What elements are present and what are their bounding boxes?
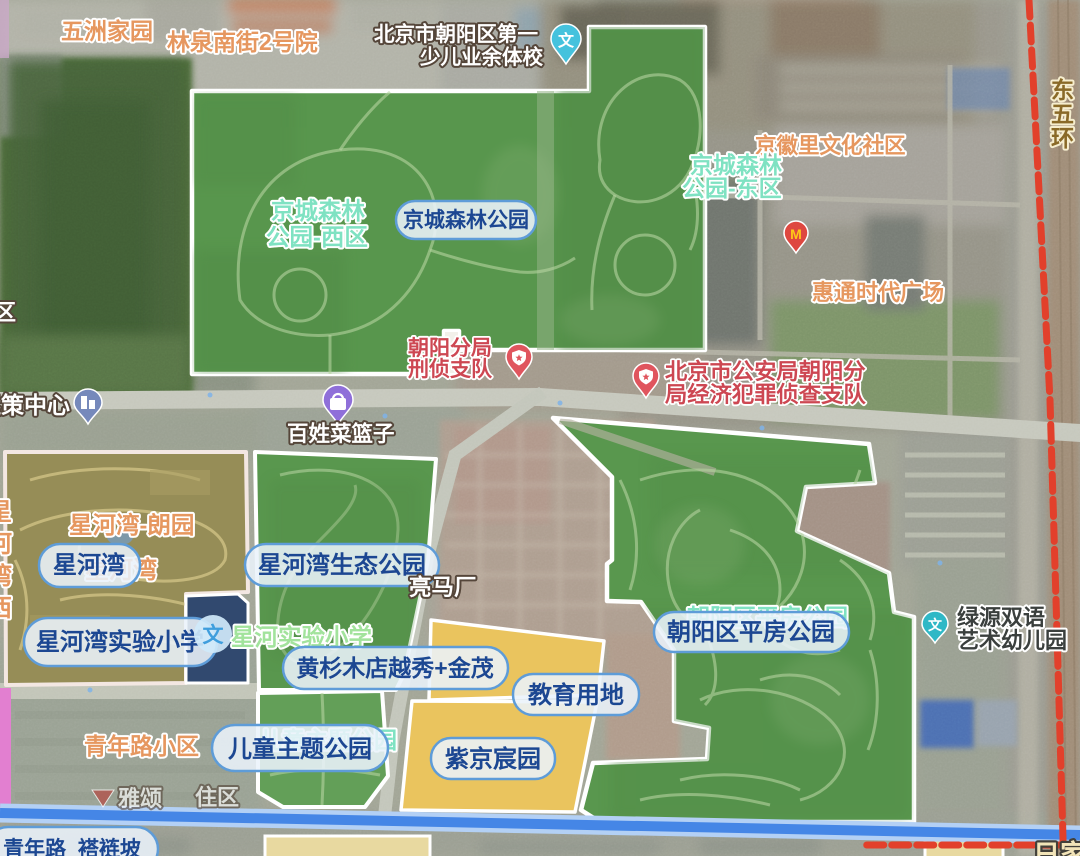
- svg-text:河: 河: [0, 531, 12, 558]
- svg-text:百姓菜篮子: 百姓菜篮子: [287, 421, 395, 446]
- svg-text:西: 西: [0, 595, 12, 622]
- svg-text:林泉南街2号院: 林泉南街2号院: [167, 29, 318, 55]
- svg-text:远策中心: 远策中心: [0, 392, 70, 418]
- svg-text:京城森林: 京城森林: [271, 197, 365, 224]
- svg-text:日家: 日家: [1033, 839, 1080, 856]
- svg-text:刑侦支队: 刑侦支队: [408, 358, 493, 381]
- svg-text:五: 五: [1051, 101, 1074, 127]
- svg-text:星河湾实验小学: 星河湾实验小学: [36, 628, 204, 656]
- svg-text:惠通时代广场: 惠通时代广场: [812, 280, 944, 305]
- svg-text:公园-东区: 公园-东区: [682, 175, 782, 201]
- svg-text:儿童主题公园: 儿童主题公园: [228, 735, 372, 763]
- svg-text:公园-西区: 公园-西区: [266, 224, 368, 250]
- svg-text:区: 区: [0, 300, 16, 325]
- svg-text:少儿业余体校: 少儿业余体校: [419, 45, 543, 69]
- svg-text:星河湾: 星河湾: [53, 551, 125, 579]
- svg-text:青年路_褡裢坡: 青年路_褡裢坡: [3, 837, 141, 856]
- svg-text:星河湾-朗园: 星河湾-朗园: [69, 511, 194, 538]
- svg-text:局经济犯罪侦查支队: 局经济犯罪侦查支队: [665, 381, 866, 407]
- svg-text:教育用地: 教育用地: [528, 681, 624, 709]
- svg-text:北京市朝阳区第一: 北京市朝阳区第一: [374, 22, 538, 46]
- svg-text:黄杉木店越秀+金茂: 黄杉木店越秀+金茂: [296, 655, 493, 681]
- svg-text:艺术幼儿园: 艺术幼儿园: [957, 628, 1067, 653]
- svg-text:环: 环: [1051, 125, 1074, 151]
- svg-text:星: 星: [0, 499, 12, 526]
- svg-text:雅颂: 雅颂: [118, 786, 162, 811]
- svg-text:M: M: [790, 226, 802, 242]
- svg-text:亮马厂: 亮马厂: [409, 574, 477, 600]
- svg-text:朝阳区平房公园: 朝阳区平房公园: [667, 618, 835, 646]
- svg-text:文: 文: [928, 617, 943, 633]
- svg-text:北京市公安局朝阳分: 北京市公安局朝阳分: [665, 358, 866, 384]
- svg-text:星河湾生态公园: 星河湾生态公园: [258, 551, 426, 579]
- svg-text:青年路小区: 青年路小区: [84, 733, 199, 759]
- svg-text:朝阳分局: 朝阳分局: [408, 336, 492, 360]
- svg-text:紫京宸园: 紫京宸园: [445, 745, 541, 773]
- svg-text:京城森林公园: 京城森林公园: [403, 208, 529, 232]
- svg-text:文: 文: [203, 623, 225, 647]
- svg-text:五洲家园: 五洲家园: [61, 18, 153, 44]
- svg-text:东: 东: [1051, 77, 1074, 103]
- svg-text:住区: 住区: [195, 785, 239, 810]
- svg-text:文: 文: [558, 31, 575, 50]
- svg-text:绿源双语: 绿源双语: [957, 605, 1045, 630]
- svg-text:湾: 湾: [0, 562, 12, 590]
